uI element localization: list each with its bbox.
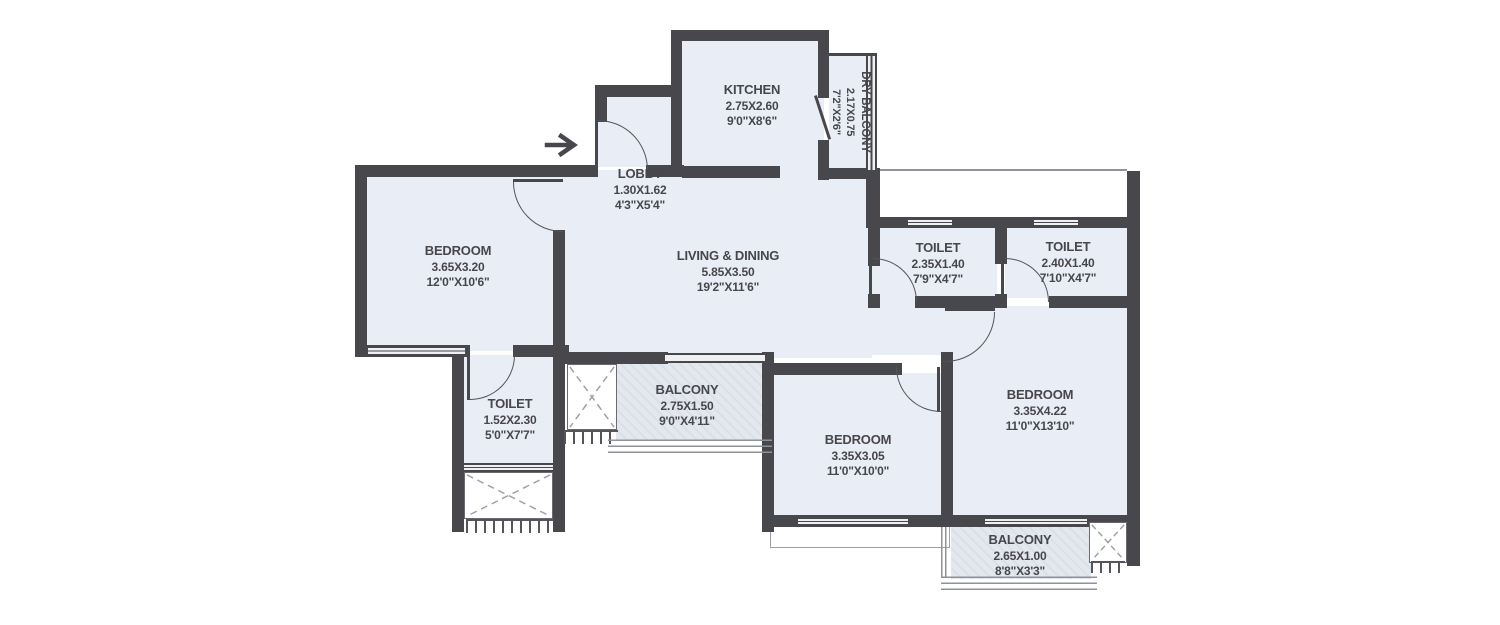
room-name: BALCONY <box>656 382 719 399</box>
hatch-strip <box>1091 561 1125 573</box>
room-name: BEDROOM <box>825 432 892 449</box>
wall-segment <box>671 30 682 167</box>
door-leaf <box>869 257 872 303</box>
room-label-balcony-mid: BALCONY 2.75X1.50 9'0"X4'11" <box>656 382 719 430</box>
room-dim-metric: 2.35X1.40 <box>912 257 965 273</box>
room-label-bedroom-mid: BEDROOM 3.35X3.05 11'0"X10'0" <box>825 432 892 480</box>
wall-segment <box>355 165 367 357</box>
window <box>1034 218 1078 227</box>
room-dim-metric: 3.65X3.20 <box>425 260 492 276</box>
room-dim-metric: 3.35X4.22 <box>1006 404 1075 420</box>
room-label-bedroom-left: BEDROOM 3.65X3.20 12'0"X10'6" <box>425 243 492 291</box>
window <box>464 463 553 472</box>
ledge-outline <box>770 527 950 548</box>
room-dim-imperial: 11'0"X10'0" <box>825 464 892 480</box>
room-dim-metric: 2.65X1.00 <box>989 549 1052 565</box>
room-dim-imperial: 9'0"X4'11" <box>656 414 719 430</box>
window <box>908 218 952 227</box>
door-leaf <box>945 308 995 311</box>
room-dim-imperial: 19'2"X11'6" <box>677 280 779 296</box>
room-name: BEDROOM <box>1006 387 1075 404</box>
room-name: LOBBY <box>614 166 667 183</box>
shaft-x-icon <box>465 473 552 518</box>
room-label-kitchen: KITCHEN 2.75X2.60 9'0"X8'6" <box>724 82 780 130</box>
wall-segment <box>595 85 607 122</box>
room-name: TOILET <box>484 396 537 413</box>
room-name: TOILET <box>912 240 965 257</box>
door-leaf <box>1001 257 1004 303</box>
wall-segment <box>553 352 668 364</box>
room-dim-metric: 2.75X2.60 <box>724 99 780 115</box>
balcony-railing <box>608 438 772 453</box>
room-name: TOILET <box>1040 239 1096 256</box>
wall-segment <box>682 166 780 178</box>
room-dim-metric: 2.17X0.75 <box>843 71 857 153</box>
room-label-bedroom-right: BEDROOM 3.35X4.22 11'0"X13'10" <box>1006 387 1075 435</box>
room-dim-imperial: 9'0"X8'6" <box>724 114 780 130</box>
room-label-lobby: LOBBY 1.30X1.62 4'3"X5'4" <box>614 166 667 214</box>
room-dim-imperial: 8'8"X3'3" <box>989 564 1052 580</box>
wall-segment <box>1049 296 1140 308</box>
room-label-toilet-2: TOILET 2.40X1.40 7'10"X4'7" <box>1040 239 1096 287</box>
wall-segment <box>1127 171 1140 566</box>
sliding-door <box>665 353 765 363</box>
room-dim-metric: 5.85X3.50 <box>677 265 779 281</box>
shaft <box>1089 522 1127 563</box>
outer-boundary-line <box>878 169 1127 171</box>
floor-plan: KITCHEN 2.75X2.60 9'0"X8'6" DRY BALCONY … <box>0 0 1500 625</box>
wall-segment <box>452 352 464 532</box>
entrance-arrow-icon <box>544 132 582 158</box>
room-label-toilet-3: TOILET 1.52X2.30 5'0"X7'7" <box>484 396 537 444</box>
wall-segment <box>941 352 953 527</box>
room-name: KITCHEN <box>724 82 780 99</box>
shaft-x-icon <box>568 365 616 429</box>
room-label-balcony-br: BALCONY 2.65X1.00 8'8"X3'3" <box>989 532 1052 580</box>
room-dim-imperial: 5'0"X7'7" <box>484 428 537 444</box>
room-dim-metric: 3.35X3.05 <box>825 449 892 465</box>
hatch-strip <box>466 519 554 533</box>
wall-segment <box>915 296 997 308</box>
room-dim-metric: 2.40X1.40 <box>1040 256 1096 272</box>
window <box>985 517 1087 526</box>
window <box>798 517 908 526</box>
wall-segment <box>355 165 598 177</box>
room-dim-metric: 2.75X1.50 <box>656 399 719 415</box>
room-dim-imperial: 11'0"X13'10" <box>1006 419 1075 435</box>
room-name: LIVING & DINING <box>677 248 779 265</box>
room-dim-imperial: 7'10"X4'7" <box>1040 271 1096 287</box>
room-dim-imperial: 7'9"X4'7" <box>912 272 965 288</box>
room-dim-metric: 1.52X2.30 <box>484 413 537 429</box>
wall-segment <box>553 230 565 352</box>
shaft-x-icon <box>1090 523 1126 562</box>
shaft <box>567 364 617 430</box>
room-name: BALCONY <box>989 532 1052 549</box>
wall-segment <box>762 363 902 375</box>
room-dim-metric: 1.30X1.62 <box>614 183 667 199</box>
room-name: BEDROOM <box>425 243 492 260</box>
shaft <box>464 472 553 519</box>
room-label-toilet-1: TOILET 2.35X1.40 7'9"X4'7" <box>912 240 965 288</box>
room-dim-imperial: 12'0"X10'6" <box>425 275 492 291</box>
room-name: DRY BALCONY <box>857 71 872 153</box>
balcony-railing <box>941 527 947 577</box>
wall-segment <box>671 30 829 41</box>
room-dim-imperial: 4'3"X5'4" <box>614 198 667 214</box>
room-label-dry-balcony: DRY BALCONY 2.17X0.75 7'2"X2'6" <box>828 71 872 153</box>
window <box>368 346 465 356</box>
room-label-living-dining: LIVING & DINING 5.85X3.50 19'2"X11'6" <box>677 248 779 296</box>
room-dim-imperial: 7'2"X2'6" <box>828 71 842 153</box>
